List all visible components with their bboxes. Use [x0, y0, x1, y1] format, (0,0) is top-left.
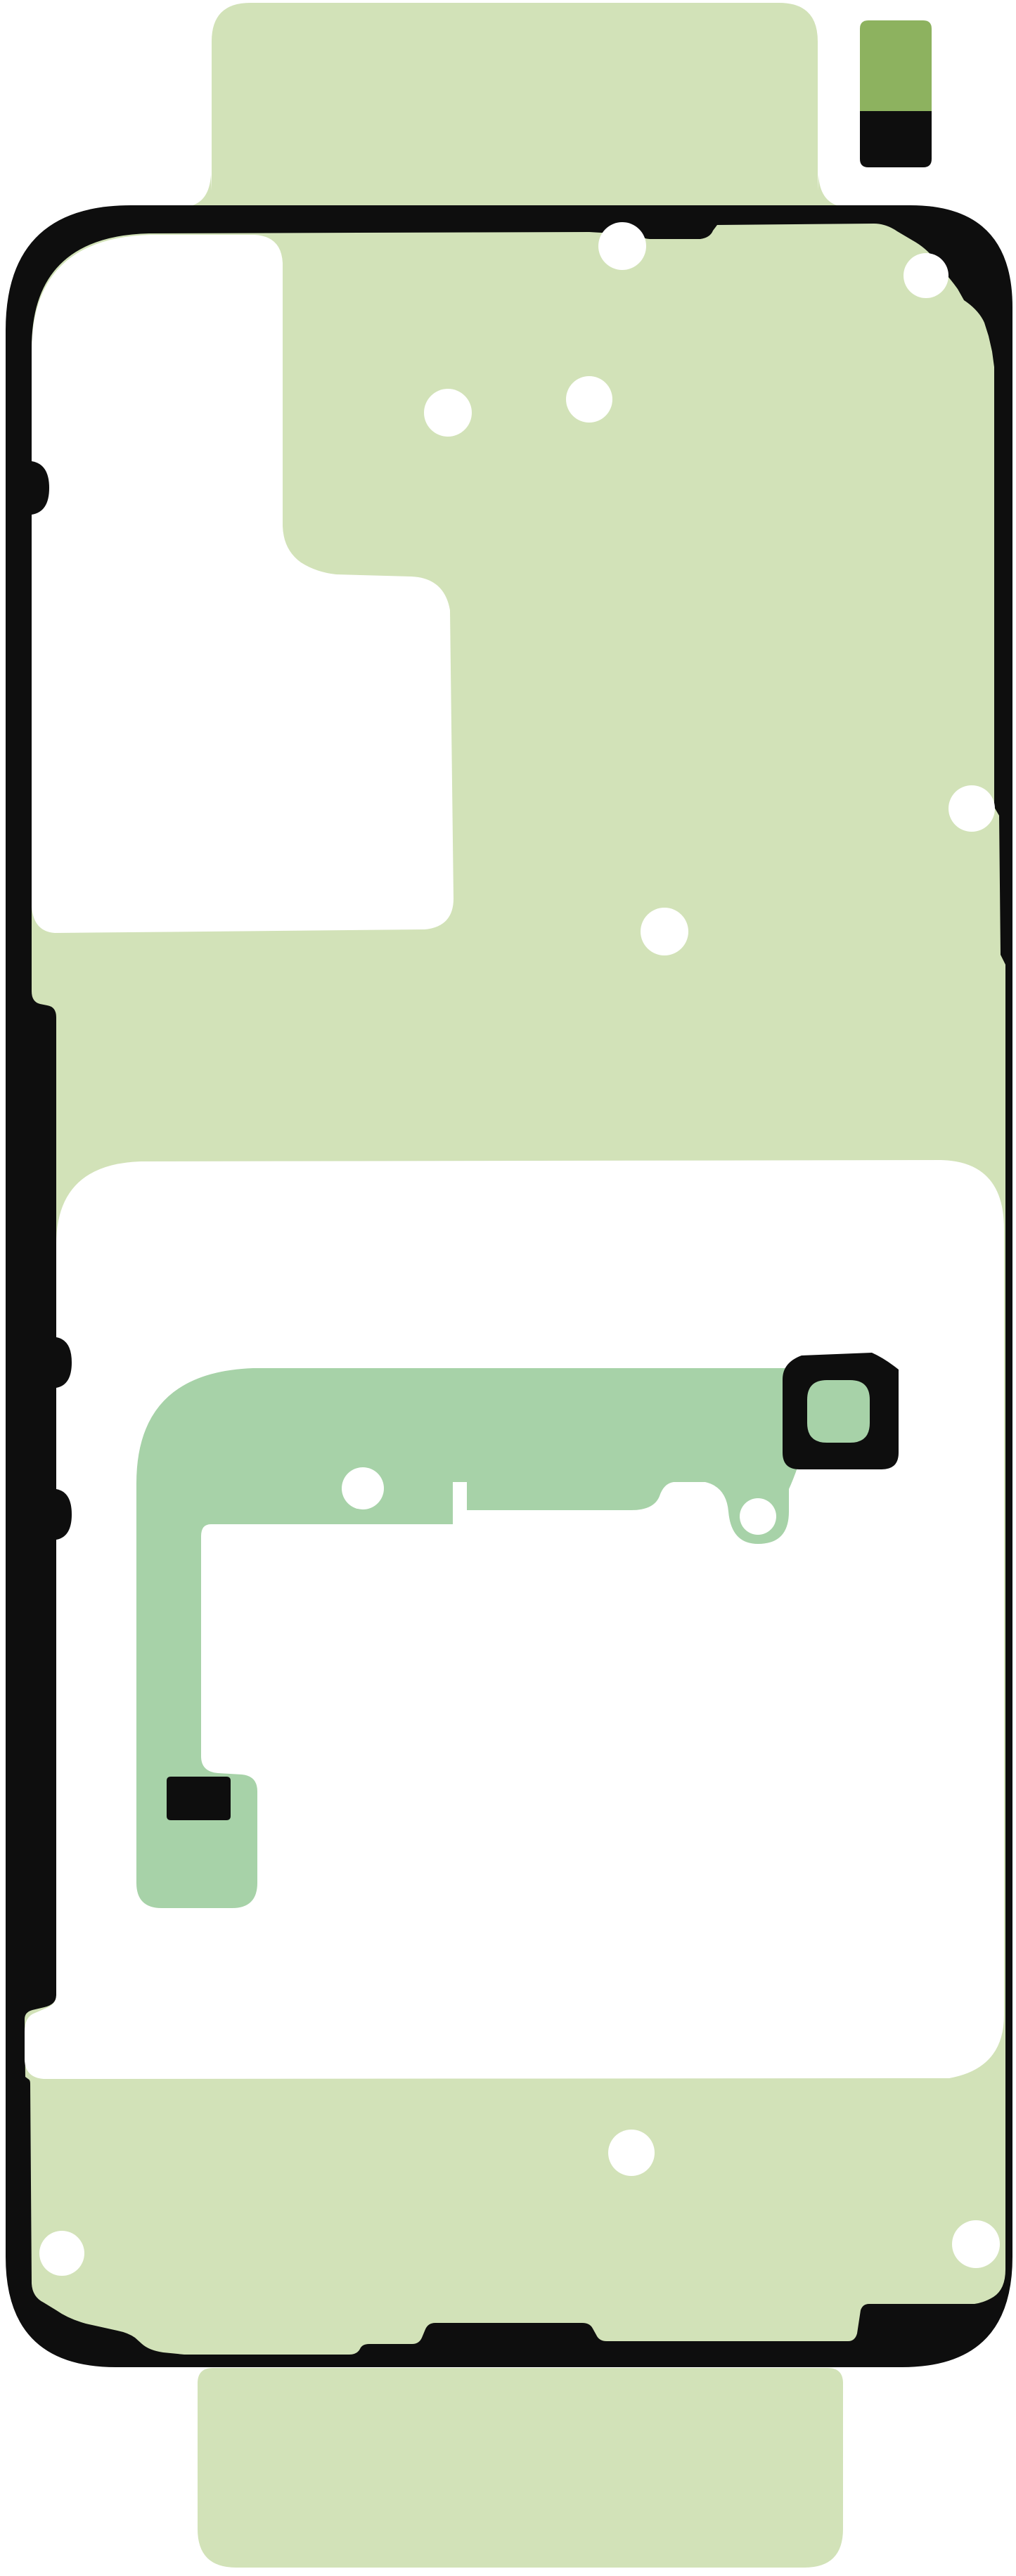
punch-hole-bottom-center — [608, 2130, 655, 2176]
pull-tab-green-part — [860, 20, 932, 111]
adhesive-sheet-illustration — [0, 0, 1016, 2576]
camera-lens-window — [807, 1380, 870, 1443]
punch-hole-mid-right — [641, 908, 688, 955]
punch-hole-strip-lobe — [740, 1498, 776, 1535]
adhesive-sheet-svg — [0, 0, 1016, 2576]
pull-tab-black-part — [860, 111, 932, 167]
strip-arm-marker — [167, 1777, 231, 1820]
punch-hole-top-right — [904, 253, 949, 298]
punch-hole-strip-bar — [342, 1467, 384, 1509]
top-liner-tab — [212, 3, 818, 207]
bottom-liner-tab — [198, 2368, 843, 2568]
punch-hole-right-edge — [949, 785, 995, 832]
punch-hole-top-center — [598, 222, 646, 270]
punch-hole-bottom-left — [39, 2231, 84, 2276]
punch-hole-bottom-right — [952, 2220, 1000, 2268]
punch-hole-upper-left — [424, 389, 472, 437]
punch-hole-upper-mid — [566, 376, 612, 423]
